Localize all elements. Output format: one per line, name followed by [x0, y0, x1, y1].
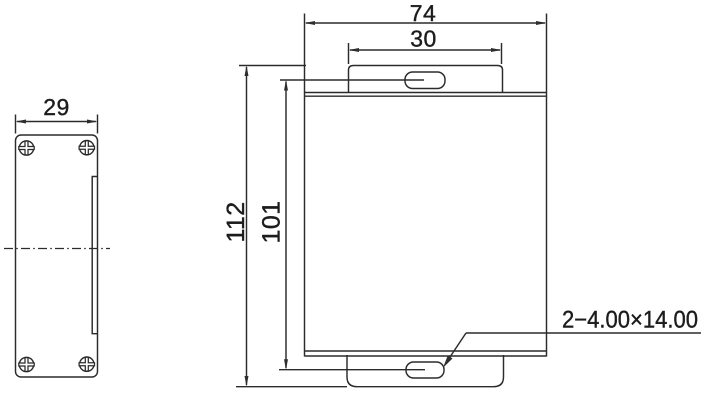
svg-text:2−4.00×14.00: 2−4.00×14.00	[562, 307, 698, 334]
svg-text:29: 29	[43, 94, 70, 120]
svg-text:112: 112	[222, 201, 250, 242]
svg-text:30: 30	[410, 26, 437, 52]
svg-text:101: 101	[258, 201, 286, 244]
svg-text:74: 74	[410, 0, 437, 26]
